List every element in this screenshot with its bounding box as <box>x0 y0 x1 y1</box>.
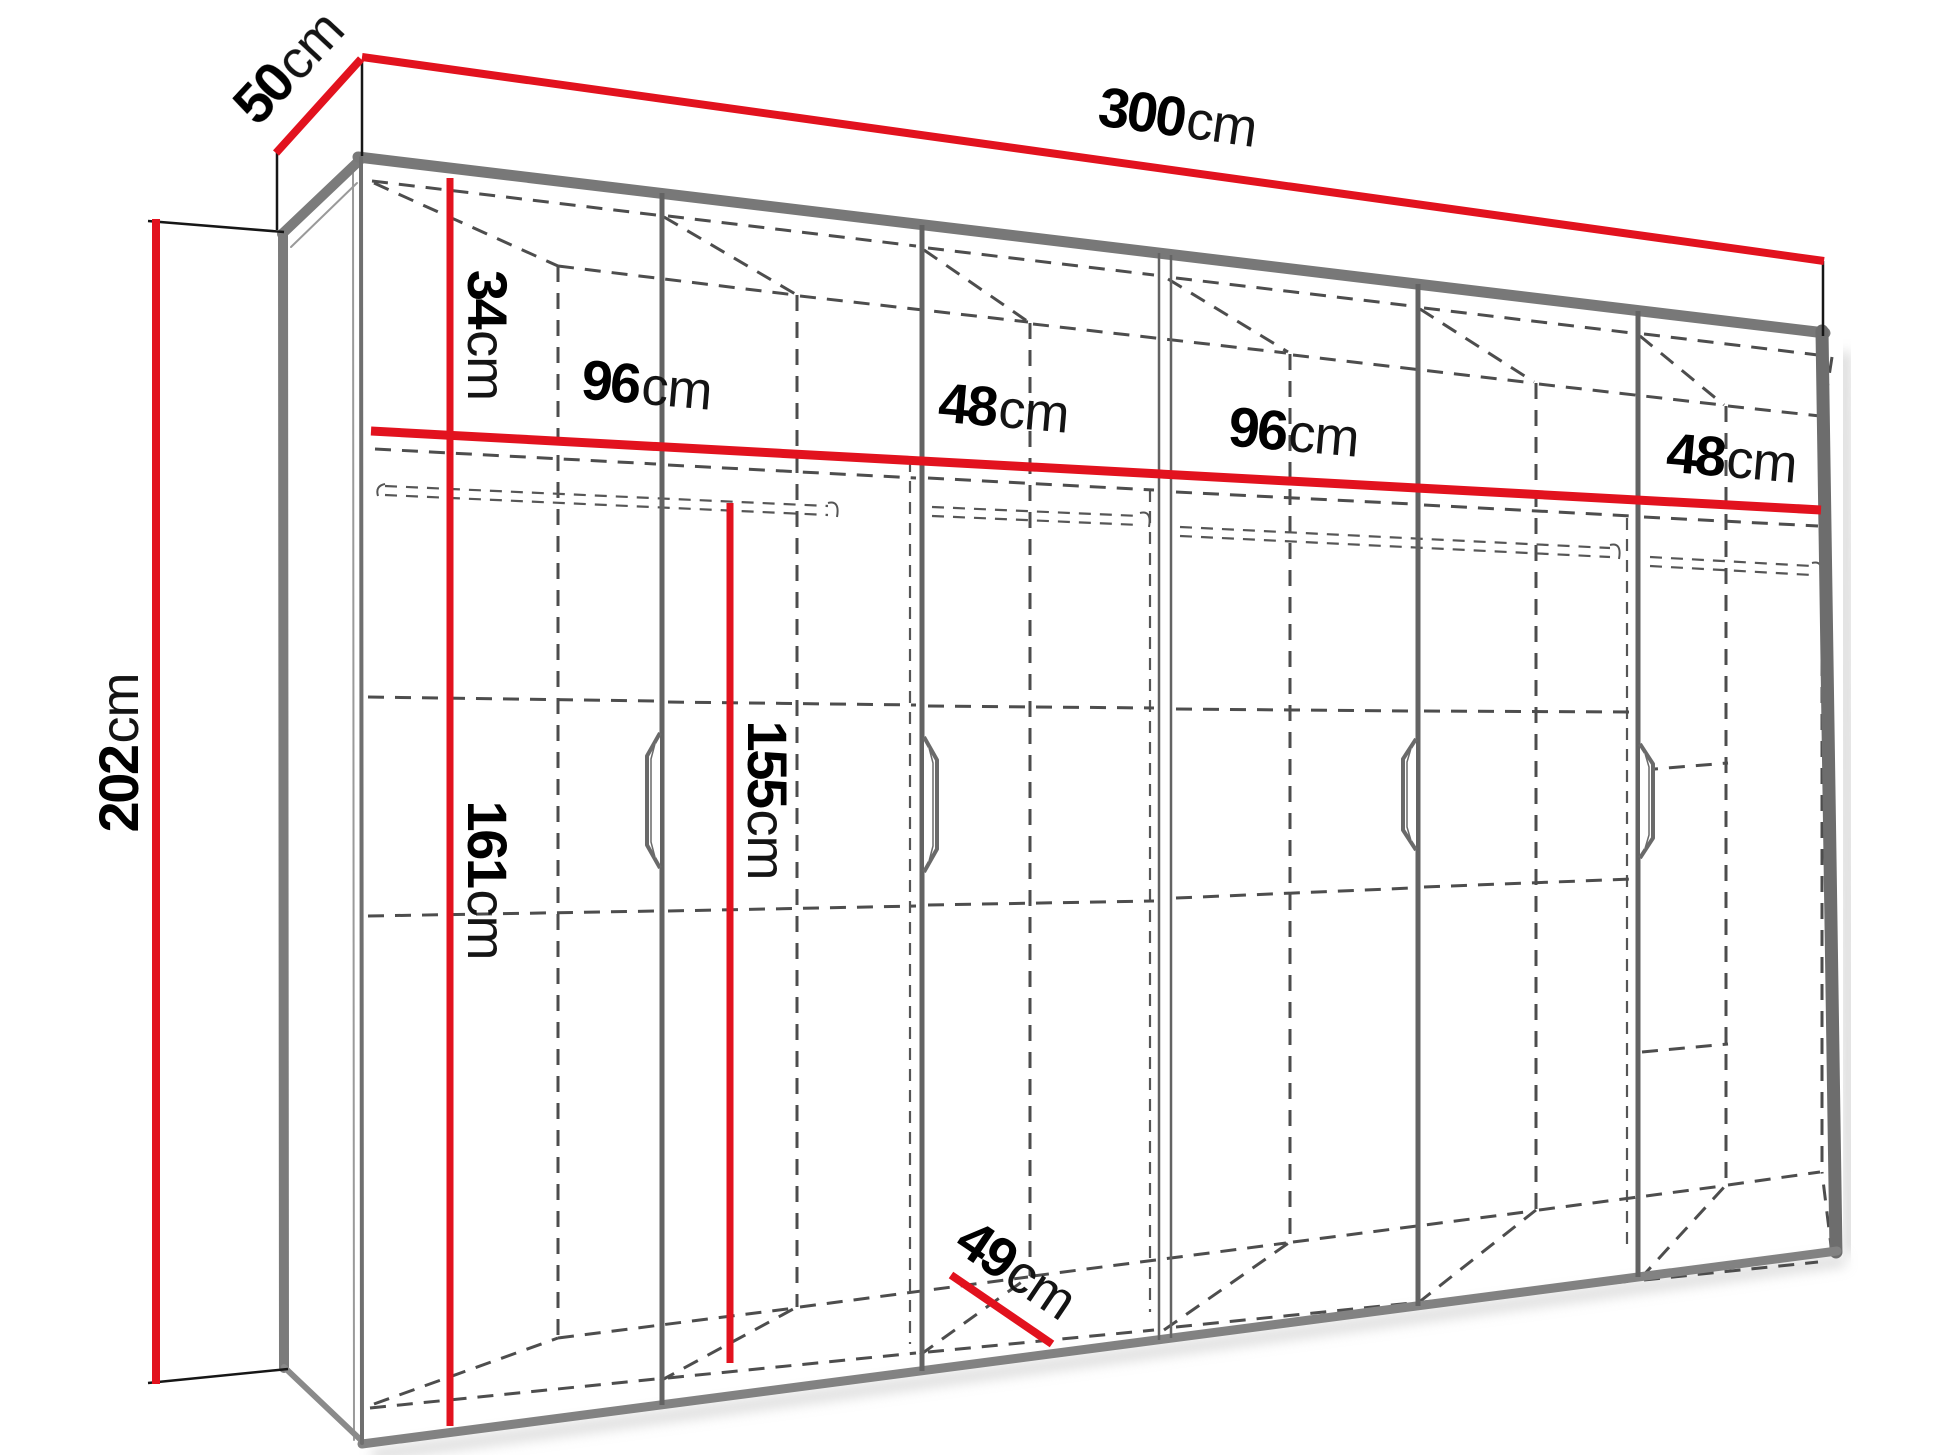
bottom-edge <box>362 1251 1837 1444</box>
dimension-labels: 300cm 50cm 202cm 34cm 161cm 155cm 96cm 4… <box>87 0 1799 1331</box>
door-handle-inner <box>651 740 656 861</box>
label-section-2-value: 48 <box>936 371 1000 439</box>
wardrobe-dimension-diagram: 300cm 50cm 202cm 34cm 161cm 155cm 96cm 4… <box>0 0 1940 1455</box>
label-floor-depth-49: 49cm <box>945 1206 1088 1331</box>
label-top-shelf-34: 34cm <box>456 270 519 400</box>
label-section-96-left: 96cm <box>579 348 714 422</box>
extension-line-height-bottom <box>148 1369 288 1383</box>
shadow-right <box>1844 352 1850 1254</box>
label-top-shelf-unit: cm <box>456 330 516 400</box>
shadow <box>372 352 1850 1455</box>
door-handle-inner <box>928 744 933 865</box>
hidden-top-shelf-edge <box>375 449 1818 526</box>
label-section-3-value: 96 <box>1226 395 1290 463</box>
door-handle-inner <box>1407 745 1412 844</box>
label-width-300: 300cm <box>1095 74 1261 159</box>
label-section-1-value: 96 <box>579 348 643 416</box>
label-depth-50: 50cm <box>220 0 355 136</box>
label-hanging-left-value: 161 <box>456 801 519 888</box>
label-hanging-middle-value: 155 <box>736 721 799 808</box>
shadow-bottom <box>372 1260 1845 1455</box>
label-section-48-right: 48cm <box>1664 421 1799 495</box>
label-section-96-right: 96cm <box>1226 395 1361 469</box>
front-left-edge-thin <box>353 162 354 1440</box>
label-section-4-value: 48 <box>1664 421 1728 489</box>
right-edge <box>1822 331 1836 1252</box>
door-handle-inner <box>1644 750 1649 852</box>
label-width-value: 300 <box>1095 74 1189 148</box>
dim-line-width-300 <box>362 57 1824 261</box>
label-hanging-middle-unit: cm <box>736 809 796 879</box>
front-left-edge <box>361 158 362 1443</box>
side-top-edge <box>282 158 362 234</box>
label-section-4-unit: cm <box>1724 429 1799 495</box>
label-hanging-155: 155cm <box>736 721 799 880</box>
label-height-unit: cm <box>90 674 150 744</box>
label-top-shelf-value: 34 <box>456 270 519 330</box>
label-hanging-161: 161cm <box>456 801 519 960</box>
label-height-202: 202cm <box>87 674 150 833</box>
label-width-unit: cm <box>1183 90 1261 159</box>
side-bottom-edge <box>284 1367 364 1443</box>
label-height-value: 202 <box>87 746 150 832</box>
label-section-3-unit: cm <box>1286 403 1361 469</box>
extension-line-height-top <box>148 221 284 232</box>
hidden-back-top <box>558 266 1820 416</box>
label-section-48-left: 48cm <box>936 371 1071 445</box>
hidden-top-band <box>372 181 1818 355</box>
label-hanging-left-unit: cm <box>456 889 516 959</box>
side-back-edge <box>283 233 284 1368</box>
top-edge <box>358 157 1825 333</box>
label-section-1-unit: cm <box>639 356 714 422</box>
label-section-2-unit: cm <box>996 379 1071 445</box>
dim-line-shelf-sections <box>371 431 1821 510</box>
